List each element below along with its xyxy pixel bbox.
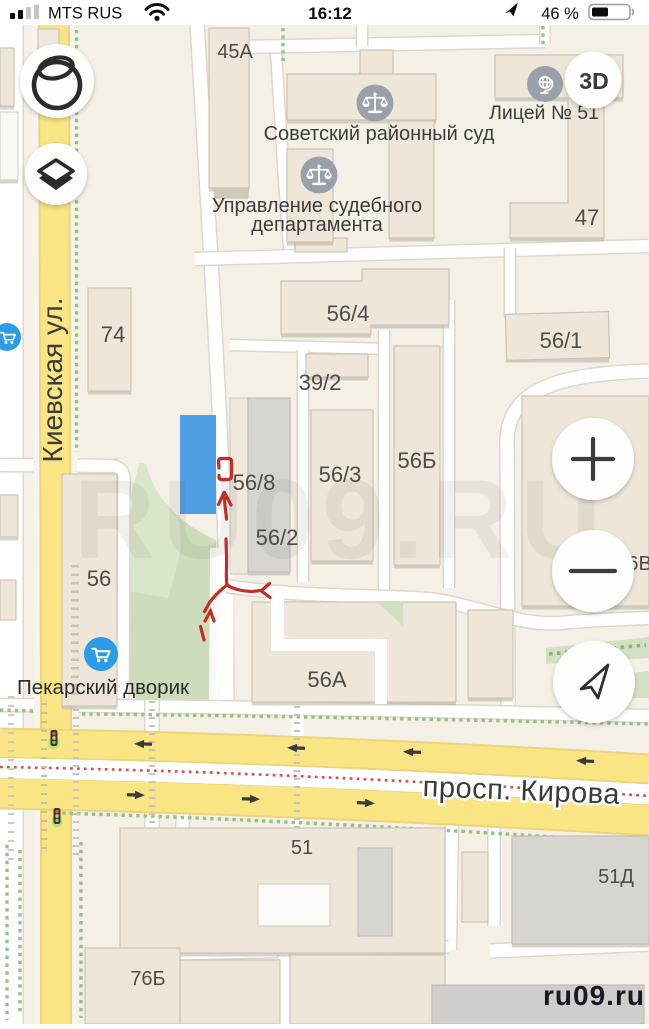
svg-text:56/4: 56/4: [327, 301, 370, 326]
svg-text:51Д: 51Д: [598, 866, 634, 888]
svg-text:департамента: департамента: [251, 214, 383, 236]
svg-text:56А: 56А: [307, 667, 346, 692]
svg-text:56: 56: [87, 566, 111, 591]
svg-text:56/1: 56/1: [540, 328, 583, 353]
svg-text:ru09.ru: ru09.ru: [543, 980, 645, 1011]
svg-text:3D: 3D: [579, 68, 608, 94]
svg-text:56/2: 56/2: [256, 525, 299, 550]
svg-text:76Б: 76Б: [130, 968, 165, 990]
svg-text:51: 51: [291, 837, 313, 859]
svg-text:Советский районный суд: Советский районный суд: [264, 123, 495, 145]
svg-text:56/8: 56/8: [233, 470, 276, 495]
svg-text:16:12: 16:12: [308, 4, 351, 23]
svg-text:Пекарский дворик: Пекарский дворик: [17, 676, 190, 699]
svg-text:MTS RUS: MTS RUS: [48, 5, 122, 23]
svg-text:45А: 45А: [217, 41, 253, 63]
svg-text:39/2: 39/2: [299, 370, 342, 395]
svg-text:56/3: 56/3: [319, 462, 362, 487]
svg-text:56Б: 56Б: [398, 448, 437, 473]
svg-text:47: 47: [575, 205, 599, 230]
svg-text:74: 74: [101, 322, 125, 347]
svg-text:46 %: 46 %: [541, 5, 579, 23]
svg-text:Киевская ул.: Киевская ул.: [37, 298, 68, 463]
